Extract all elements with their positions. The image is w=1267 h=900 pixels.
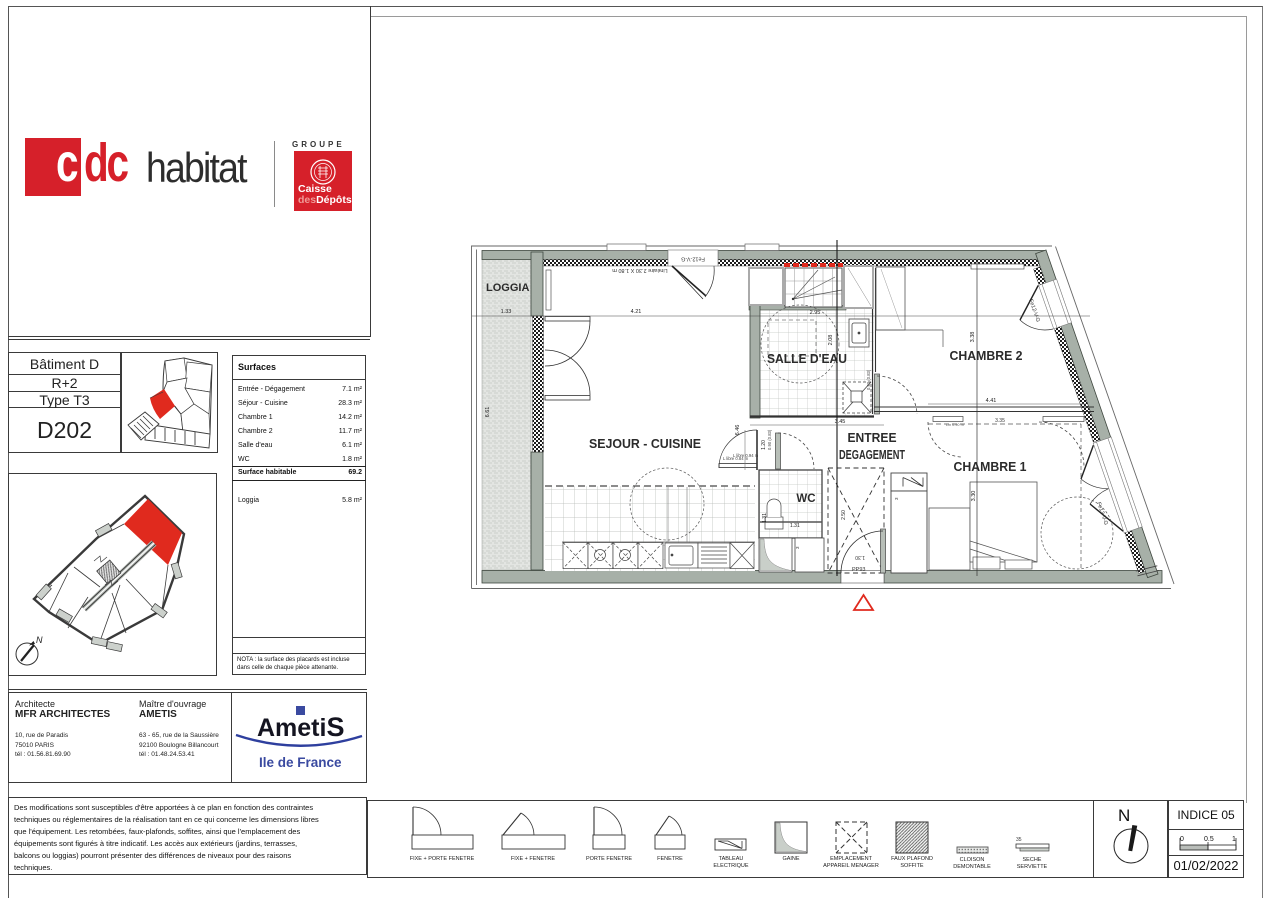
svg-text:2.08: 2.08	[828, 335, 834, 346]
svg-text:DEGAGEMENT: DEGAGEMENT	[839, 448, 905, 462]
svg-text:CHAMBRE 2: CHAMBRE 2	[950, 349, 1023, 363]
svg-text:Fe12-V-G: Fe12-V-G	[681, 256, 705, 262]
svg-text:Linéaire 2.30 X 1.80 m: Linéaire 2.30 X 1.80 m	[612, 267, 668, 273]
svg-text:L libre 0.94 m: L libre 0.94 m	[733, 453, 759, 458]
svg-text:1.31: 1.31	[790, 523, 800, 529]
svg-text:0.90 (0.83): 0.90 (0.83)	[767, 429, 772, 450]
svg-text:WC: WC	[796, 493, 815, 505]
svg-text:6.46: 6.46	[735, 425, 741, 436]
svg-text:Lin 0.90 m: Lin 0.90 m	[946, 423, 964, 427]
svg-text:6.61: 6.61	[485, 407, 491, 418]
svg-text:2.50: 2.50	[841, 510, 847, 520]
svg-text:SALLE D'EAU: SALLE D'EAU	[767, 352, 847, 366]
svg-text:3.30: 3.30	[971, 491, 977, 502]
svg-text:0.90 (0.83): 0.90 (0.83)	[866, 369, 871, 390]
svg-text:2.95: 2.95	[810, 310, 821, 316]
svg-text:3.35: 3.35	[995, 418, 1005, 424]
svg-text:1.33: 1.33	[501, 309, 512, 315]
svg-text:ENTREE: ENTREE	[848, 431, 897, 445]
svg-text:3.45: 3.45	[835, 419, 846, 425]
svg-text:3.38: 3.38	[970, 332, 976, 343]
svg-text:1.31: 1.31	[762, 513, 768, 523]
svg-text:4.21: 4.21	[631, 309, 642, 315]
svg-text:CHAMBRE 1: CHAMBRE 1	[954, 460, 1027, 474]
svg-text:LOGGIA: LOGGIA	[486, 282, 529, 294]
svg-text:4.41: 4.41	[986, 398, 997, 404]
svg-text:1.30: 1.30	[855, 554, 865, 560]
svg-text:PP93: PP93	[852, 567, 865, 573]
svg-text:SEJOUR - CUISINE: SEJOUR - CUISINE	[589, 437, 701, 451]
